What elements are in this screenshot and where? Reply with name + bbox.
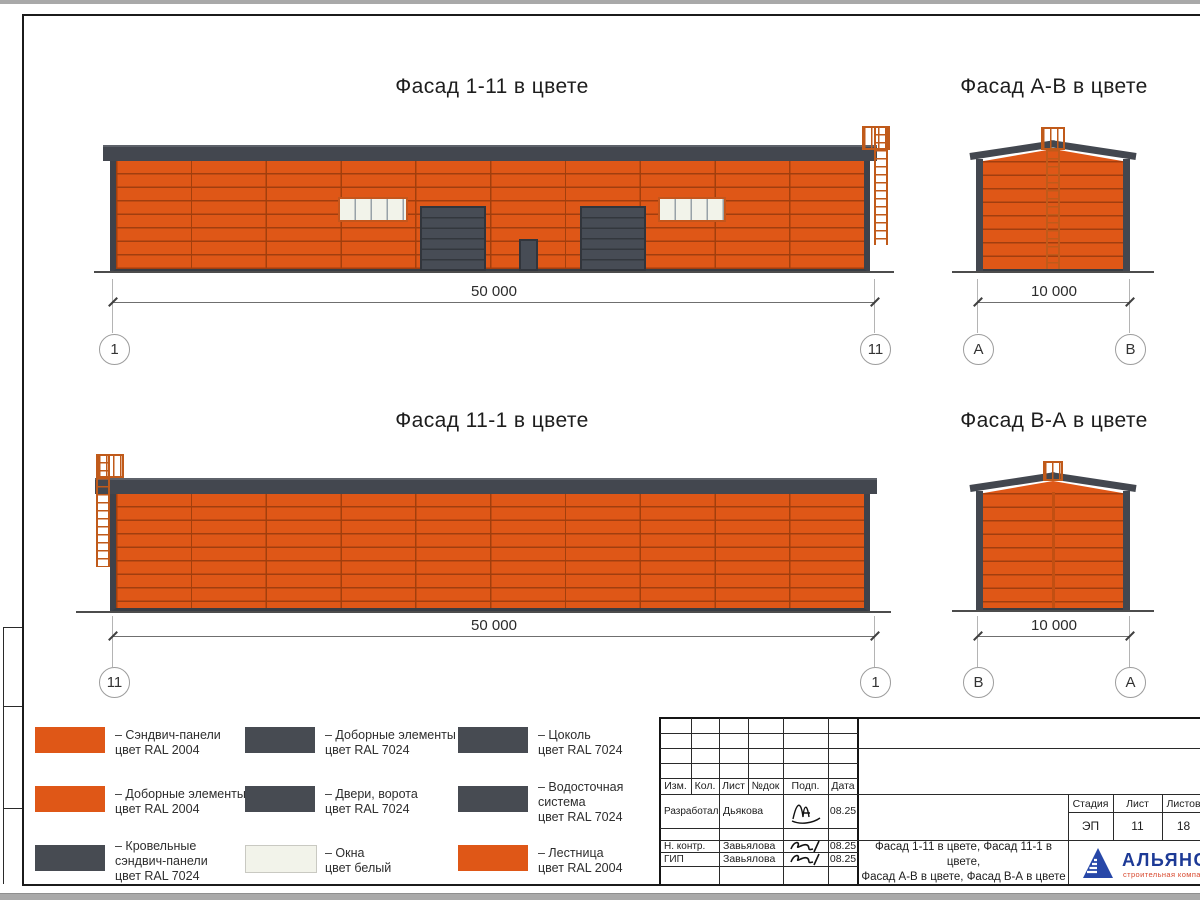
signature-developer	[788, 797, 824, 827]
legend-swatch	[35, 845, 105, 871]
dimension-value: 10 000	[978, 617, 1130, 634]
sheet-label: Лист	[1113, 795, 1162, 812]
ridge-joint-line	[1052, 492, 1055, 608]
legend-swatch	[458, 845, 528, 871]
facade-1-11-title: Фасад 1-11 в цвете	[342, 75, 642, 99]
corner-column-left	[976, 159, 983, 273]
stage-label: Стадия	[1068, 795, 1113, 812]
dimension-line	[113, 302, 875, 303]
axis-marker-1: 1	[99, 334, 130, 365]
bottom-gray-bar	[0, 893, 1200, 900]
axis-marker-b: В	[963, 667, 994, 698]
name-developer: Дьякова	[720, 794, 782, 828]
window-strip-left	[338, 197, 408, 222]
drawing-sheet: Фасад 1-11 в цвете 50 000 1 11 Фасад А-В…	[0, 0, 1200, 900]
legend-swatch	[245, 786, 315, 812]
corner-column-left	[976, 491, 983, 612]
dimension-line	[978, 636, 1130, 637]
name-gip: Завьялова	[720, 852, 782, 866]
legend-label: – Доборные элементы цвет RAL 2004	[115, 787, 246, 817]
legend-swatch	[458, 727, 528, 753]
col-izm: Изм.	[660, 779, 691, 793]
facade-11-1-title: Фасад 11-1 в цвете	[342, 409, 642, 433]
facade-a-b-drawing	[971, 146, 1135, 273]
facade-b-a-title: Фасад В-А в цвете	[921, 409, 1187, 433]
sheets-value: 18	[1162, 812, 1200, 840]
margin-stamp-divider	[3, 808, 22, 809]
facade-1-11-roof	[103, 145, 877, 161]
ground-line	[952, 610, 1154, 612]
facade-11-1-roof	[95, 478, 877, 494]
window-strip-right	[658, 197, 726, 222]
legend-swatch	[35, 727, 105, 753]
legend-label: – Водосточная система цвет RAL 7024	[538, 780, 623, 825]
ground-line	[76, 611, 891, 613]
top-gray-bar	[0, 0, 1200, 4]
facade-a-b-title: Фасад А-В в цвете	[921, 75, 1187, 99]
titleblock-border	[659, 717, 1200, 719]
legend-label: – Окна цвет белый	[325, 846, 391, 876]
company-logo-tagline: строительная компания	[1123, 870, 1200, 879]
dimension-line	[978, 302, 1130, 303]
legend-label: – Кровельные сэндвич-панели цвет RAL 702…	[115, 839, 208, 884]
titleblock-grid-line	[660, 828, 858, 829]
company-logo-pyramid	[1082, 847, 1114, 879]
legend-label: – Двери, ворота цвет RAL 7024	[325, 787, 418, 817]
roof-access-ladder	[1046, 150, 1060, 269]
date-gip: 08.25	[828, 852, 858, 866]
facade-1-11-wall	[110, 161, 870, 273]
margin-stamp-line	[3, 627, 4, 884]
margin-stamp-divider	[3, 627, 22, 628]
dimension-value: 10 000	[978, 283, 1130, 300]
legend-label: – Лестница цвет RAL 2004	[538, 846, 623, 876]
axis-marker-b: В	[1115, 334, 1146, 365]
entrance-door	[519, 239, 538, 271]
legend-swatch	[458, 786, 528, 812]
roof-access-ladder	[96, 454, 110, 567]
titleblock-grid-line	[660, 763, 858, 764]
titleblock-grid-line	[660, 733, 858, 734]
facade-b-a-drawing	[971, 478, 1135, 612]
role-ncontrol: Н. контр.	[661, 840, 719, 852]
roof-ladder-cage	[1041, 127, 1065, 150]
axis-marker-1: 1	[860, 667, 891, 698]
corner-column-right	[1123, 159, 1130, 273]
dimension-value: 50 000	[113, 617, 875, 634]
date-developer: 08.25	[828, 794, 858, 828]
sheets-label: Листов	[1162, 795, 1200, 812]
col-list: Лист	[719, 779, 748, 793]
gate-left	[420, 206, 486, 271]
titleblock-grid-line	[783, 718, 784, 884]
date-ncontrol: 08.25	[828, 840, 858, 852]
axis-marker-11: 11	[860, 334, 891, 365]
legend-label: – Цоколь цвет RAL 7024	[538, 728, 623, 758]
margin-stamp-divider	[3, 706, 22, 707]
signature-gip	[787, 853, 823, 866]
corner-column-right	[1123, 491, 1130, 612]
stage-value: ЭП	[1068, 812, 1113, 840]
role-developer: Разработал	[661, 794, 719, 828]
name-ncontrol: Завьялова	[720, 840, 782, 852]
gate-right	[580, 206, 646, 271]
roof-ladder-cage	[1043, 461, 1063, 481]
col-ndok: №док	[748, 779, 783, 793]
ground-line	[952, 271, 1154, 273]
titleblock-grid-line	[660, 866, 858, 867]
axis-marker-a: А	[1115, 667, 1146, 698]
roof-access-ladder	[874, 126, 888, 245]
legend-swatch	[35, 786, 105, 812]
signature-ncontrol	[787, 840, 823, 853]
role-gip: ГИП	[661, 852, 719, 866]
document-title: Фасад 1-11 в цвете, Фасад 11-1 в цвете, …	[860, 840, 1067, 884]
ground-line	[94, 271, 894, 273]
axis-marker-a: А	[963, 334, 994, 365]
company-logo-name: АЛЬЯНС	[1122, 850, 1200, 871]
legend-label: – Доборные элементы цвет RAL 7024	[325, 728, 456, 758]
legend-label: – Сэндвич-панели цвет RAL 2004	[115, 728, 221, 758]
titleblock-grid-line	[660, 748, 1200, 749]
col-data: Дата	[828, 779, 858, 793]
sheet-value: 11	[1113, 812, 1162, 840]
dimension-line	[113, 636, 875, 637]
col-podp: Подп.	[783, 779, 828, 793]
legend-swatch	[245, 727, 315, 753]
axis-marker-11: 11	[99, 667, 130, 698]
dimension-value: 50 000	[113, 283, 875, 300]
col-kol: Кол.	[691, 779, 719, 793]
legend-swatch	[245, 845, 317, 873]
facade-11-1-wall	[110, 494, 870, 612]
